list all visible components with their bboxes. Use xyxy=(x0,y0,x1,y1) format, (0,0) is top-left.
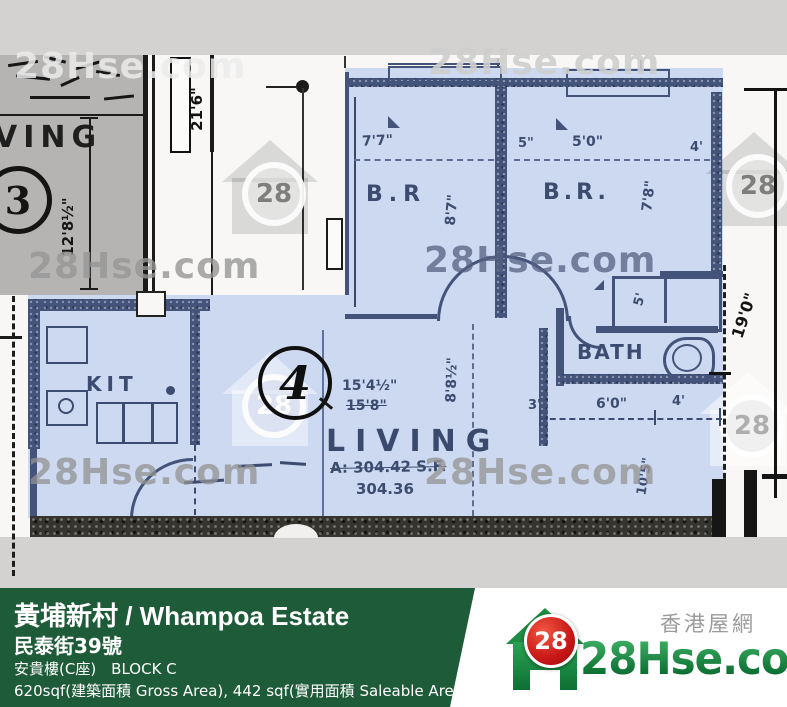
bedroom2-dim-right: 4' xyxy=(690,140,703,155)
unit3-room-label: VING xyxy=(0,120,102,155)
wall xyxy=(539,328,548,446)
tick-mark xyxy=(388,116,400,128)
logo-house-door-icon xyxy=(530,670,560,690)
living-area-note2: 304.36 xyxy=(356,480,414,498)
scribble-stroke xyxy=(30,96,90,99)
wall-notch xyxy=(136,291,166,317)
estate-title: 黃埔新村 / Whampoa Estate xyxy=(14,596,349,633)
living-width-dim: 15'4½" xyxy=(342,378,397,394)
wall xyxy=(30,516,712,537)
dimension-tick xyxy=(80,117,98,119)
watermark-badge: 28 xyxy=(242,162,306,226)
kitchen-fixture-drain xyxy=(58,398,74,414)
wall xyxy=(744,470,757,537)
watermark-badge: 28 xyxy=(726,154,787,218)
hall-dim-mid: 6'0" xyxy=(596,396,627,412)
kitchen-fixture xyxy=(46,326,88,364)
tick-mark xyxy=(556,118,568,130)
closet xyxy=(612,276,722,332)
kitchen-fixture-knob xyxy=(166,386,175,395)
wall xyxy=(354,97,356,307)
bedroom2-dim-left: 5" xyxy=(518,136,534,151)
wall xyxy=(711,92,722,275)
window xyxy=(326,218,343,270)
tick-mark xyxy=(594,280,604,290)
bedroom1-label: B.R xyxy=(366,182,426,207)
unit4-number-circle: 4 xyxy=(258,346,332,420)
dimension-tick xyxy=(719,408,721,426)
estate-area: 620sqf(建築面積 Gross Area), 442 sqf(實用面積 Sa… xyxy=(14,680,469,701)
dimension-line xyxy=(774,90,777,498)
wall xyxy=(30,299,210,311)
dimension-line xyxy=(540,418,722,420)
wall xyxy=(596,326,718,333)
dimension-line xyxy=(514,159,710,161)
dimension-tick xyxy=(744,88,787,91)
unit4-number: 4 xyxy=(279,356,311,410)
bedroom2-label: B.R. xyxy=(543,180,610,205)
toilet-fixture-bowl xyxy=(672,344,702,372)
kitchen-fixture xyxy=(96,402,124,444)
hall-dim-right: 4' xyxy=(672,394,685,409)
dimension-tick xyxy=(80,288,98,290)
wall xyxy=(28,299,40,449)
watermark-text: 28Hse.com xyxy=(28,246,260,287)
watermark-text: 28Hse.com xyxy=(424,452,656,493)
floorplan-listing-image: VING 3 12'8½" 21'6" 28 28 28 28 xyxy=(0,0,787,707)
tick-mark xyxy=(0,336,22,339)
dimension-tick xyxy=(709,372,731,375)
wall xyxy=(0,114,148,116)
28hse-logo[interactable]: 28 香港屋網 28Hse.com xyxy=(500,600,780,700)
estate-block: 安貴樓(C座) BLOCK C xyxy=(14,658,177,679)
kitchen-label: KIT xyxy=(86,372,138,396)
bath-label: BATH xyxy=(577,340,645,364)
wall xyxy=(266,86,296,88)
watermark-text: 28Hse.com xyxy=(428,42,660,83)
kitchen-fixture xyxy=(123,402,153,444)
bedroom2-width-dim: 5'0" xyxy=(572,134,603,150)
estate-address: 民泰街39號 xyxy=(14,630,122,659)
wall xyxy=(345,72,349,295)
wall xyxy=(345,314,437,319)
watermark-text: 28Hse.com xyxy=(28,452,260,493)
wall xyxy=(723,265,726,515)
dimension-tick xyxy=(654,410,656,425)
unit3-number: 3 xyxy=(5,178,31,223)
wall xyxy=(190,299,200,445)
bedroom1-width-dim: 7'7" xyxy=(362,132,394,150)
logo-brand-text: 28Hse.com xyxy=(580,632,787,684)
dimension-line xyxy=(354,159,494,161)
kitchen-fixture xyxy=(152,402,178,444)
wall xyxy=(712,479,726,537)
wall xyxy=(664,279,667,323)
logo-badge: 28 xyxy=(524,614,578,668)
living-height-dim: 8'8½" xyxy=(443,340,462,421)
tick-mark xyxy=(344,56,346,68)
living-width-dim-old: 15'8" xyxy=(346,398,387,414)
watermark-text: 28Hse.com xyxy=(14,46,246,87)
hall-dim-left: 3' xyxy=(528,398,541,413)
watermark-text: 28Hse.com xyxy=(424,240,656,281)
